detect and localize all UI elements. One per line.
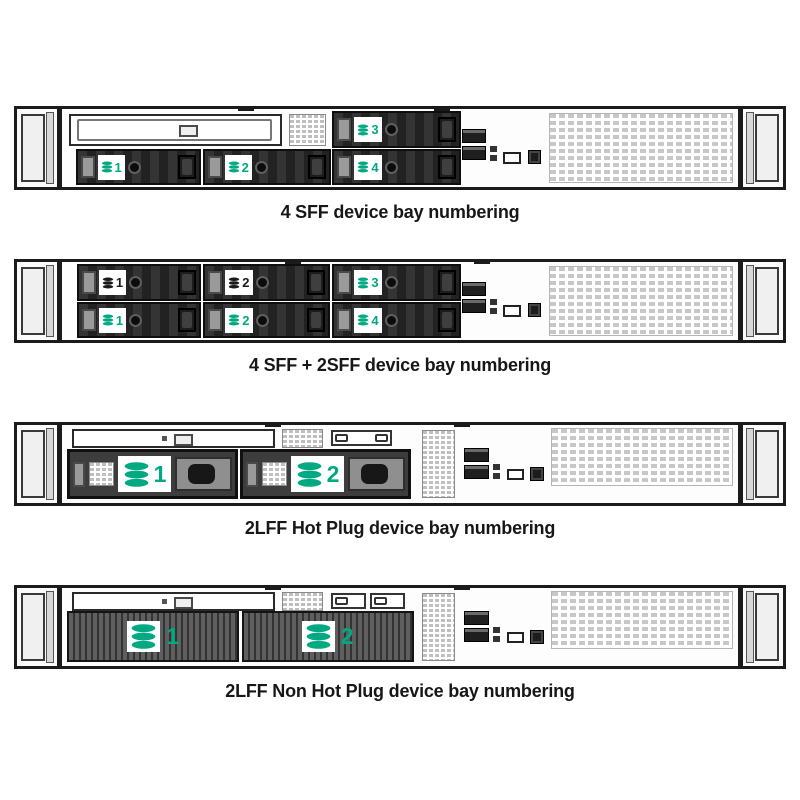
drive-knob <box>128 161 141 174</box>
usb-ports <box>464 611 487 642</box>
disk-stack-icon <box>102 277 114 289</box>
figure-2lff-hotplug: 1 2 <box>14 422 786 539</box>
optical-drive-bay <box>72 429 275 449</box>
bay-label-plate <box>127 621 160 652</box>
figure-caption: 2LFF Non Hot Plug device bay numbering <box>14 681 786 702</box>
disk-stack-icon <box>357 314 369 326</box>
rack-ear-left <box>14 259 60 343</box>
chassis-body: 1 2 <box>60 422 740 506</box>
bay-latch <box>82 309 96 331</box>
ear-latch <box>755 114 779 182</box>
drive-bay-2sff-2: 2 <box>203 264 330 301</box>
carrier-handle <box>348 457 404 491</box>
bay-label-plate: 2 <box>225 270 252 295</box>
bay-latch <box>73 462 85 487</box>
bay-latch <box>82 271 96 293</box>
bay-latch <box>337 271 351 293</box>
bay-number: 1 <box>115 161 122 174</box>
drive-bay-4: 4 <box>332 149 460 186</box>
drive-bay-3: 3 <box>332 264 460 301</box>
screw <box>375 434 388 442</box>
optical-led <box>162 436 167 441</box>
ear-latch <box>755 267 779 335</box>
optical-drive-tray <box>77 119 272 140</box>
screw <box>335 434 348 442</box>
chassis-tab <box>474 259 490 264</box>
disk-stack-icon <box>357 124 369 136</box>
optical-eject-button <box>174 434 193 446</box>
usb-ports <box>462 282 484 313</box>
bay-number: 4 <box>371 161 378 174</box>
ventilation-grille <box>551 428 733 486</box>
drive-bay-1: 1 <box>67 611 239 662</box>
bay-number: 1 <box>116 314 123 327</box>
disk-stack-icon <box>357 161 369 173</box>
optical-drive-bay <box>72 592 275 612</box>
disk-stack-icon <box>130 623 157 650</box>
ear-latch <box>21 267 45 335</box>
rack-ear-left <box>14 585 60 669</box>
drive-knob <box>129 276 142 289</box>
rack-ear-right <box>740 106 786 190</box>
figure-2lff-nonhotplug: 1 2 2LFF Non Hot Plug device bay numberi… <box>14 585 786 702</box>
port-connector-dark <box>528 303 542 317</box>
drive-bay-1: 1 <box>77 302 201 339</box>
chassis-body: 1 2 <box>60 585 740 669</box>
drive-knob <box>385 276 398 289</box>
bay-number: 1 <box>116 276 123 289</box>
disk-stack-icon <box>101 161 113 173</box>
indicator-marks <box>490 299 497 314</box>
bay-latch <box>81 156 95 178</box>
port-connector-dark <box>528 150 542 164</box>
port-connector <box>503 305 521 317</box>
bay-endcap <box>438 308 456 333</box>
chassis-tab <box>285 259 301 264</box>
bay-endcap <box>307 270 325 295</box>
indicator-marks <box>493 627 500 642</box>
disk-stack-icon <box>228 314 240 326</box>
vent-patch <box>282 429 323 449</box>
carrier-handle <box>175 457 231 491</box>
port-connector-dark <box>530 630 544 644</box>
drive-knob <box>385 314 398 327</box>
server-front-2lff-hotplug: 1 2 <box>14 422 786 506</box>
bay-label-plate: 2 <box>291 456 345 493</box>
drive-knob <box>256 276 269 289</box>
vent-patch <box>282 592 323 612</box>
bay-endcap <box>178 270 196 295</box>
drive-knob <box>385 123 398 136</box>
bay-number: 1 <box>154 463 167 486</box>
vent-patch <box>289 114 326 145</box>
ear-latch <box>755 593 779 661</box>
chassis-tab <box>265 585 281 590</box>
bay-label-plate: 4 <box>354 308 381 333</box>
ear-bar <box>746 265 754 337</box>
drive-knob <box>255 161 268 174</box>
bay-number: 3 <box>371 276 378 289</box>
bay-label-plate: 2 <box>225 155 252 180</box>
rack-ear-left <box>14 106 60 190</box>
chassis-tab <box>454 585 470 590</box>
vent-strip <box>422 593 456 660</box>
drive-knob <box>129 314 142 327</box>
ventilation-grille <box>551 591 733 649</box>
screw <box>374 597 387 605</box>
drive-bay-2: 2 <box>240 449 410 499</box>
disk-stack-icon <box>357 277 369 289</box>
bay-label-plate: 1 <box>99 308 126 333</box>
bay-label-plate <box>302 621 335 652</box>
bay-number: 3 <box>371 123 378 136</box>
rack-ear-right <box>740 585 786 669</box>
usb-ports <box>462 129 484 160</box>
bay-latch <box>208 271 222 293</box>
ear-latch <box>755 430 779 498</box>
drive-bay-2: 2 <box>203 149 331 186</box>
drive-bay-4: 4 <box>332 302 460 339</box>
screw <box>335 597 348 605</box>
blank-bracket <box>331 593 366 609</box>
bay-endcap <box>438 270 456 295</box>
ventilation-grille <box>549 266 734 336</box>
bay-number: 2 <box>242 276 249 289</box>
figure-4sff-2sff: 1 2 <box>14 259 786 376</box>
rack-ear-left <box>14 422 60 506</box>
chassis-body: 3 4 <box>60 106 740 190</box>
ear-bar <box>46 265 54 337</box>
ear-latch <box>21 593 45 661</box>
chassis-tab <box>454 422 470 427</box>
bay-endcap <box>438 155 456 180</box>
drive-knob <box>256 314 269 327</box>
bay-endcap <box>307 308 325 333</box>
bay-number: 2 <box>327 463 340 486</box>
disk-stack-icon <box>228 161 240 173</box>
rack-ear-right <box>740 259 786 343</box>
carrier-vents <box>262 462 286 486</box>
drive-bay-2sff-1: 1 <box>77 264 201 301</box>
ventilation-grille <box>549 113 734 183</box>
ear-bar <box>46 591 54 663</box>
bay-number: 2 <box>341 625 354 648</box>
chassis-tab <box>265 422 281 427</box>
bay-latch <box>208 156 222 178</box>
bay-latch <box>337 156 351 178</box>
server-front-4sff: 3 4 <box>14 106 786 190</box>
bay-number: 4 <box>371 314 378 327</box>
disk-stack-icon <box>228 277 240 289</box>
rack-ear-right <box>740 422 786 506</box>
bay-endcap <box>178 308 196 333</box>
drive-bay-1: 1 <box>67 449 237 499</box>
ear-bar <box>46 428 54 500</box>
server-front-4sff-2sff: 1 2 <box>14 259 786 343</box>
bay-latch <box>208 309 222 331</box>
disk-stack-icon <box>123 461 150 488</box>
drive-knob <box>385 161 398 174</box>
bay-label-plate: 4 <box>354 155 381 180</box>
disk-stack-icon <box>296 461 323 488</box>
figure-4sff: 3 4 <box>14 106 786 223</box>
vent-strip <box>422 430 456 497</box>
bay-label-plate: 2 <box>225 308 252 333</box>
bay-endcap <box>438 117 456 142</box>
bay-endcap <box>178 155 196 180</box>
indicator-marks <box>493 464 500 479</box>
chassis-tab <box>238 106 254 111</box>
drive-bay-2: 2 <box>203 302 330 339</box>
optical-eject-button <box>174 597 193 609</box>
server-front-2lff-nonhotplug: 1 2 <box>14 585 786 669</box>
chassis-body: 1 2 <box>60 259 740 343</box>
bay-number: 2 <box>242 161 249 174</box>
drive-bay-2: 2 <box>242 611 414 662</box>
figure-caption: 4 SFF device bay numbering <box>14 202 786 223</box>
optical-eject-button <box>179 125 198 137</box>
disk-stack-icon <box>305 623 332 650</box>
drive-bay-3: 3 <box>332 111 460 148</box>
carrier-vents <box>89 462 113 486</box>
bay-label-plate: 3 <box>354 117 381 142</box>
bay-latch <box>246 462 258 487</box>
drive-bay-1: 1 <box>76 149 202 186</box>
ear-latch <box>21 114 45 182</box>
bay-latch <box>337 118 351 140</box>
bay-endcap <box>308 155 326 180</box>
bay-label-plate: 3 <box>354 270 381 295</box>
bay-label-plate: 1 <box>118 456 172 493</box>
bay-latch <box>337 309 351 331</box>
ear-latch <box>21 430 45 498</box>
usb-ports <box>464 448 487 479</box>
blank-bracket <box>370 593 405 609</box>
figure-caption: 2LFF Hot Plug device bay numbering <box>14 518 786 539</box>
bay-label-plate: 1 <box>98 155 125 180</box>
port-connector <box>507 469 525 481</box>
chassis-tab <box>434 106 450 111</box>
optical-led <box>162 599 167 604</box>
bay-number: 1 <box>166 625 179 648</box>
bay-label-plate: 1 <box>99 270 126 295</box>
disk-stack-icon <box>102 314 114 326</box>
port-connector <box>507 632 525 644</box>
page: 3 4 <box>0 0 800 800</box>
optical-drive-bay <box>69 114 282 145</box>
figure-caption: 4 SFF + 2SFF device bay numbering <box>14 355 786 376</box>
ear-bar <box>746 591 754 663</box>
ear-bar <box>46 112 54 184</box>
indicator-marks <box>490 146 497 161</box>
ear-bar <box>746 112 754 184</box>
bay-number: 2 <box>242 314 249 327</box>
blank-bracket <box>331 430 392 446</box>
ear-bar <box>746 428 754 500</box>
port-connector <box>503 152 521 164</box>
port-connector-dark <box>530 467 544 481</box>
